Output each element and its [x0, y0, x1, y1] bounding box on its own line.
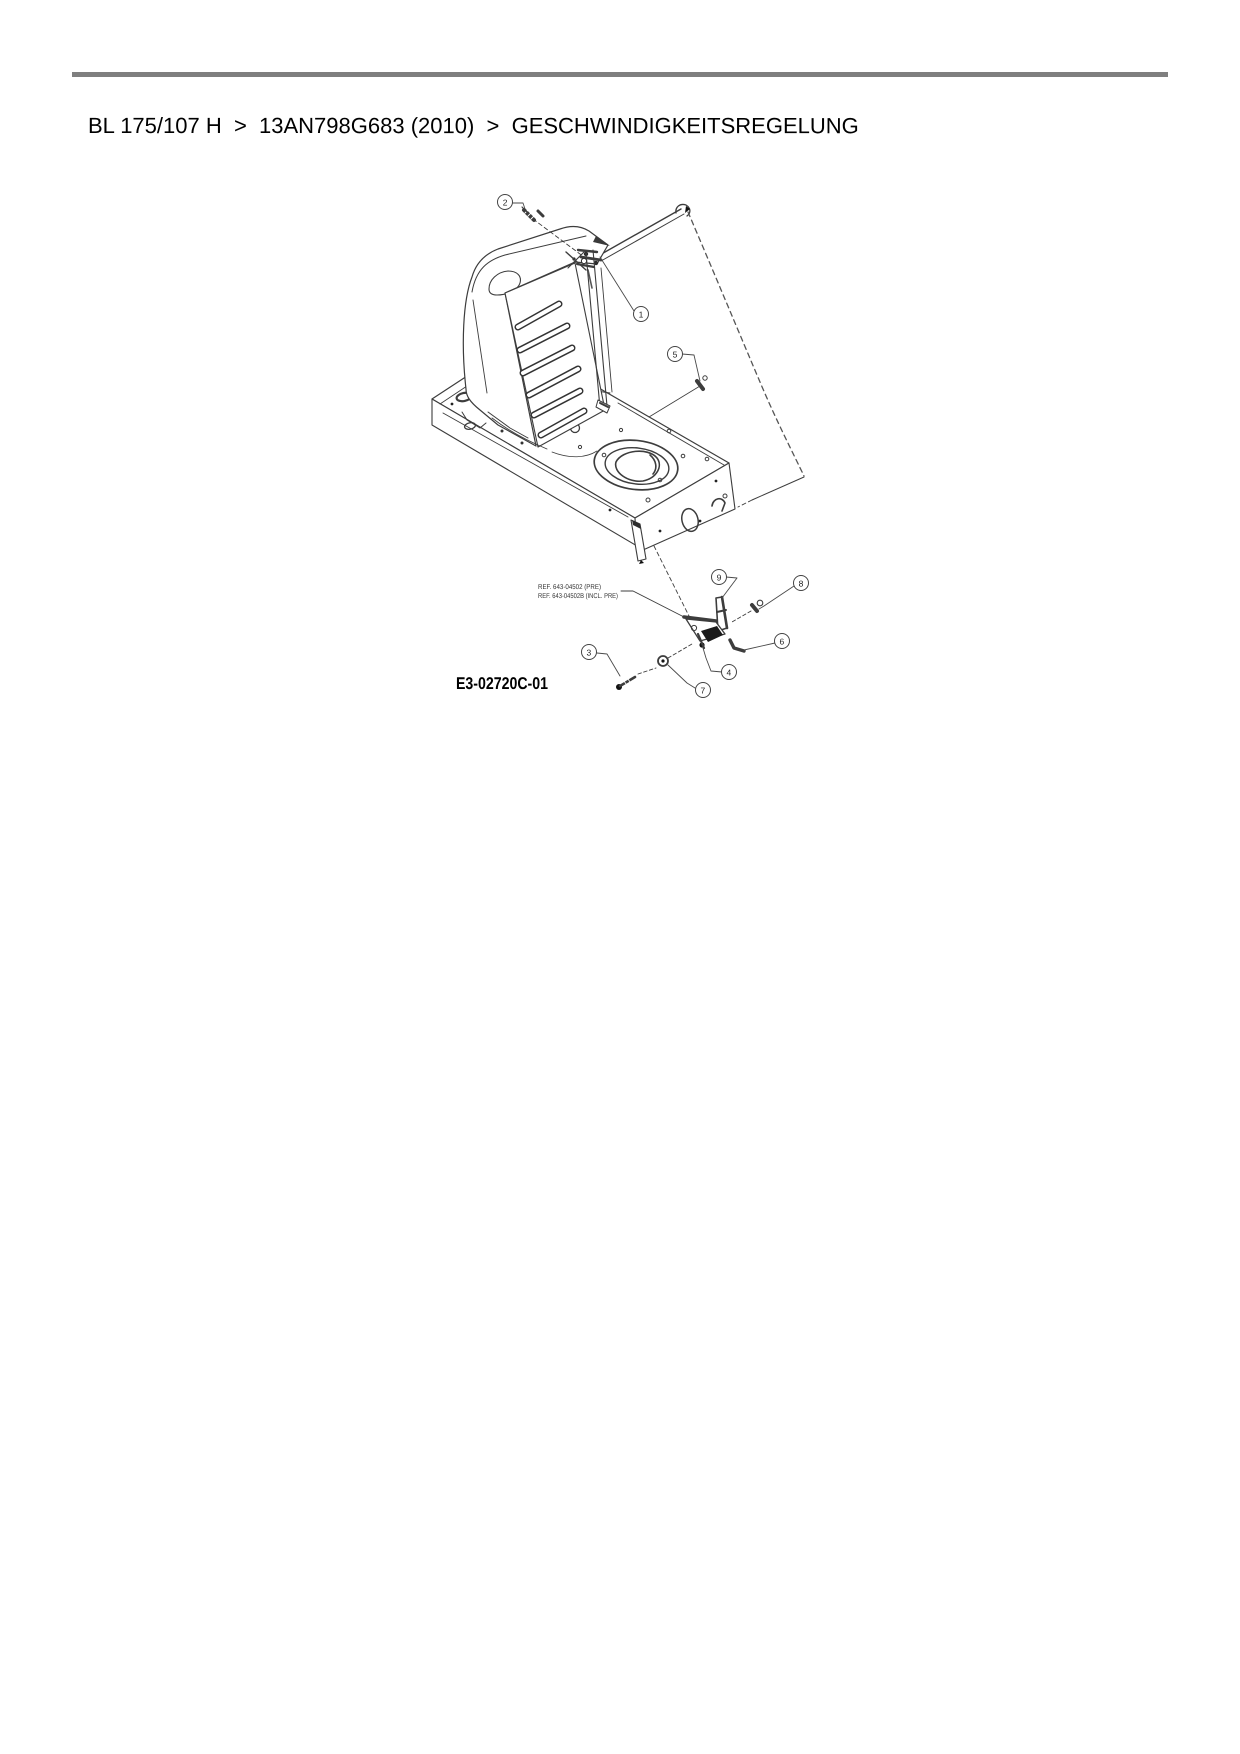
svg-text:6: 6: [780, 637, 785, 647]
svg-text:8: 8: [799, 579, 804, 589]
svg-text:REF. 643-04502B (INCL. PRE): REF. 643-04502B (INCL. PRE): [538, 592, 618, 600]
svg-text:4: 4: [727, 668, 732, 678]
svg-text:7: 7: [701, 686, 706, 696]
svg-text:E3-02720C-01: E3-02720C-01: [456, 674, 548, 693]
svg-text:REF. 643-04502 (PRE): REF. 643-04502 (PRE): [538, 583, 601, 591]
svg-text:5: 5: [673, 350, 678, 360]
svg-text:1: 1: [639, 309, 644, 319]
svg-text:2: 2: [503, 197, 508, 207]
svg-text:3: 3: [587, 647, 592, 657]
svg-text:9: 9: [717, 573, 722, 583]
